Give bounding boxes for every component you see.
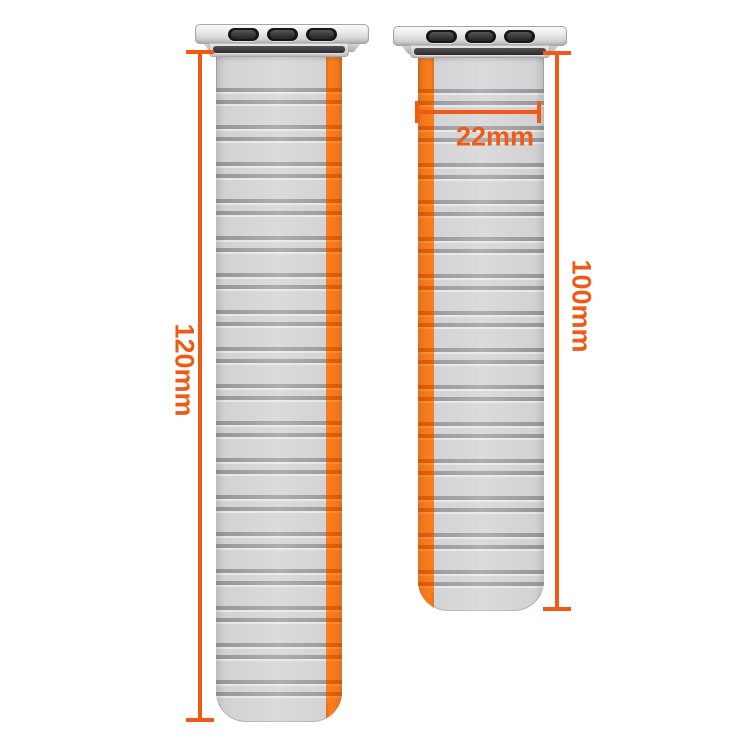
adapter-neck-short (410, 45, 550, 58)
length-label-long: 120mm (171, 323, 198, 416)
adapter-pin-core (429, 32, 454, 41)
adapter-pin-core (507, 32, 532, 41)
strap-ridges (216, 88, 326, 704)
strap-body-long (216, 52, 342, 722)
adapter-pin (465, 30, 496, 43)
adapter-slot-long (213, 46, 345, 53)
adapter-pin (228, 28, 259, 41)
width-label: 22mm (456, 124, 534, 151)
adapter-pin-core (231, 30, 256, 39)
watch-band-dimension-diagram: 120mm 100mm 22mm (0, 0, 750, 750)
dimension-line-width (417, 110, 541, 114)
dimension-tick (186, 718, 214, 722)
dimension-tick (543, 607, 571, 611)
adapter-pin-core (468, 32, 493, 41)
dimension-tick (186, 50, 214, 54)
dimension-line-length-short (555, 53, 559, 611)
adapter-pin-core (309, 30, 334, 39)
adapter-pin (504, 30, 535, 43)
length-label-short: 100mm (568, 259, 595, 352)
adapter-pin (306, 28, 337, 41)
lug-adapter-short (393, 26, 567, 46)
dimension-tick (543, 51, 571, 55)
adapter-slot-short (414, 48, 546, 55)
strap-ridges (434, 89, 544, 593)
lug-adapter-long (195, 24, 369, 44)
orange-stripe-long (326, 52, 342, 722)
orange-stripe-short (418, 53, 434, 611)
stripe-ridges (326, 88, 342, 704)
adapter-neck-long (209, 43, 349, 57)
adapter-pin-core (270, 30, 295, 39)
dimension-tick (415, 101, 419, 123)
stripe-ridges (418, 89, 434, 593)
adapter-pin (426, 30, 457, 43)
adapter-pin (267, 28, 298, 41)
dimension-tick (537, 101, 541, 123)
